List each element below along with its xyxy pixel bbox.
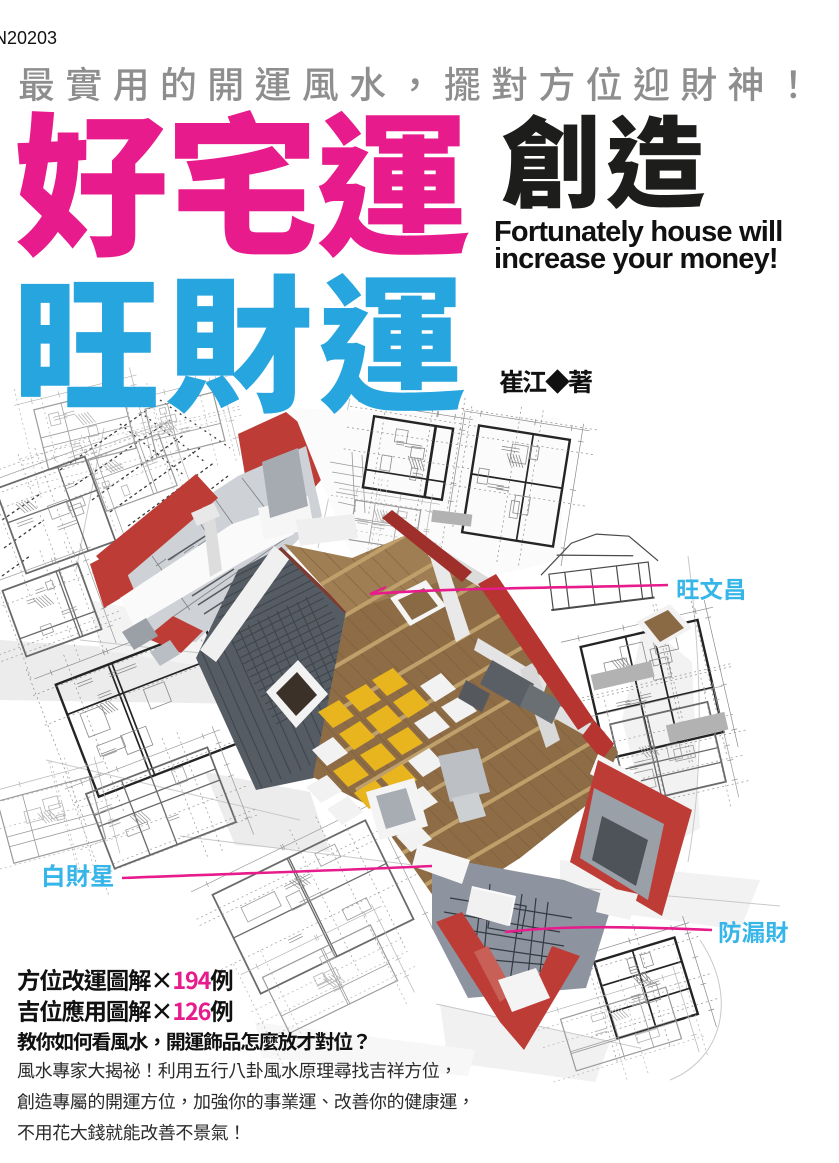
svg-text:increase your money!: increase your money! <box>494 243 778 275</box>
svg-text:N20203: N20203 <box>0 28 57 48</box>
